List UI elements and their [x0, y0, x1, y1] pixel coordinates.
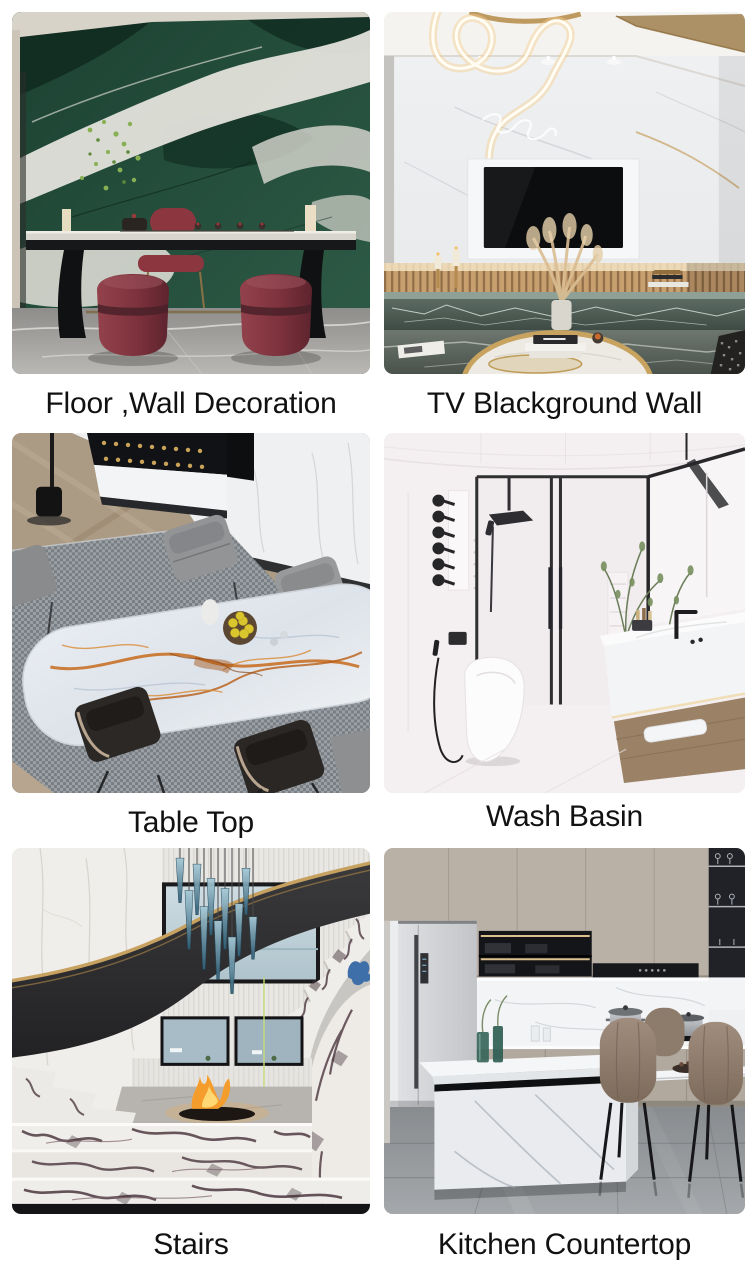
vase — [551, 300, 571, 330]
caption-table-top: Table Top — [12, 806, 370, 840]
door-handle — [548, 567, 551, 629]
wash-basin-image — [384, 433, 745, 793]
table-top-image — [12, 433, 370, 793]
tv-background-wall-image — [384, 12, 745, 374]
gallery-row-1: Floor ,Wall Decoration — [12, 12, 750, 433]
application-gallery: Floor ,Wall Decoration — [0, 0, 750, 1262]
gallery-item-floor-wall-decoration: Floor ,Wall Decoration — [12, 12, 370, 433]
flush-plate — [449, 632, 467, 645]
red-chair-seat — [138, 255, 204, 272]
gallery-item-wash-basin: Wash Basin — [384, 433, 745, 848]
caption-kitchen-countertop: Kitchen Countertop — [384, 1228, 745, 1262]
gallery-item-table-top: Table Top — [12, 433, 370, 848]
gallery-row-2: Table Top — [12, 433, 750, 848]
floor-wall-decoration-image — [12, 12, 370, 374]
door-handle — [559, 567, 562, 629]
vase — [201, 599, 219, 625]
stairs-image — [12, 848, 370, 1214]
maroon-stool — [97, 274, 169, 356]
amenity-tray — [632, 620, 652, 631]
candle — [62, 209, 71, 231]
caption-wash-basin: Wash Basin — [384, 800, 745, 834]
caption-stairs: Stairs — [12, 1228, 370, 1262]
floor-lamp — [36, 487, 62, 517]
teapot — [122, 218, 147, 231]
fire-logs — [179, 1107, 255, 1121]
caption-floor-wall-decoration: Floor ,Wall Decoration — [12, 387, 370, 421]
candle — [305, 205, 316, 231]
kitchen-countertop-image — [384, 848, 745, 1214]
gallery-item-tv-background-wall: TV Blackground Wall — [384, 12, 745, 433]
coffee-cup — [592, 333, 603, 344]
gallery-item-kitchen-countertop: Kitchen Countertop — [384, 848, 745, 1262]
basin-faucet — [674, 610, 697, 614]
caption-tv-background-wall: TV Blackground Wall — [384, 387, 745, 421]
gallery-item-stairs: Stairs — [12, 848, 370, 1262]
gallery-row-3: Stairs — [12, 848, 750, 1262]
